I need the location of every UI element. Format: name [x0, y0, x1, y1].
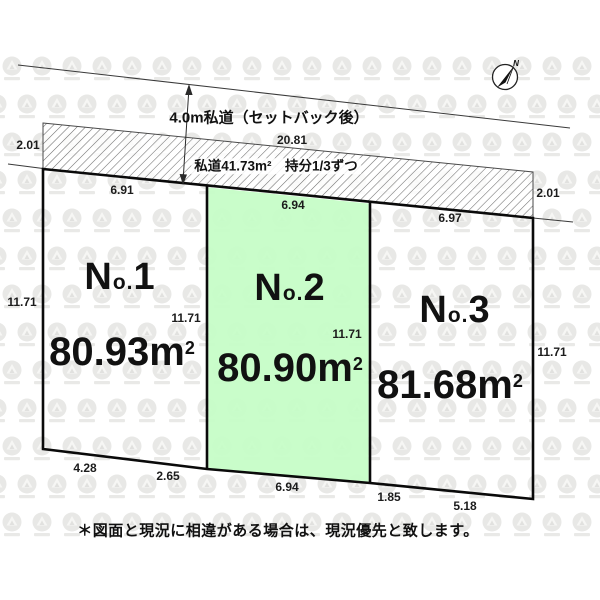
dim-no3-bottom-left: 1.85 [377, 491, 400, 503]
dim-no2-right: 11.71 [332, 328, 361, 340]
plot1-no-o: o. [113, 271, 134, 294]
plot3-area-label: 81.68m2 [377, 365, 523, 405]
plot1-area-value: 80.93 [49, 330, 149, 374]
plot3-area-unit: m [477, 363, 513, 407]
road-area-share-label: 私道41.73m² 持分1/3ずつ [191, 158, 361, 174]
dim-no3-right: 11.71 [537, 346, 566, 358]
dim-no2-top: 6.94 [281, 199, 304, 211]
left-extension-line [8, 164, 43, 169]
plot1-number-label: No.1 [84, 258, 155, 296]
plot2-area-sup: 2 [353, 354, 363, 374]
road-length-dimension: 20.81 [277, 134, 307, 146]
dim-no2-bottom: 6.94 [275, 481, 298, 493]
dim-no3-bottom-right: 5.18 [453, 500, 476, 512]
plot2-no-o: o. [283, 282, 304, 305]
dim-no3-top: 6.97 [438, 212, 461, 224]
dim-setback-right: 2.01 [536, 187, 559, 199]
plot3-no-digit: 3 [468, 289, 490, 331]
disclaimer-note: ＊図面と現況に相違がある場合は、現況優先と致します。 [77, 524, 479, 539]
plot3-no-o: o. [448, 304, 469, 327]
plot1-no-digit: 1 [133, 256, 155, 298]
plot3-area-sup: 2 [513, 371, 523, 391]
dim-no1-bottom-right: 2.65 [156, 470, 179, 482]
dim-no1-left: 11.71 [7, 296, 36, 308]
dim-no1-right: 11.71 [171, 312, 200, 324]
plot2-number-label: No.2 [254, 269, 325, 307]
dim-no1-bottom-left: 4.28 [73, 462, 96, 474]
plot1-area-label: 80.93m2 [49, 332, 195, 372]
compass-icon [493, 65, 518, 90]
dim-setback-left: 2.01 [16, 139, 39, 151]
plot1-area-unit: m [149, 330, 185, 374]
plot1-area-sup: 2 [185, 338, 195, 358]
plot3-area-value: 81.68 [377, 363, 477, 407]
plot1-no-n: N [84, 256, 112, 298]
land-plot-diagram: N 4.0m私道（セットバック後） 20.81 私道41.73m² 持分1/3ず… [0, 0, 600, 600]
plot3-no-n: N [419, 289, 447, 331]
plot2-area-unit: m [317, 346, 353, 390]
plot2-area-value: 80.90 [217, 346, 317, 390]
plot2-no-digit: 2 [303, 267, 325, 309]
dim-no1-top: 6.91 [110, 184, 133, 196]
plot2-area-label: 80.90m2 [217, 348, 363, 388]
plot2-no-n: N [254, 267, 282, 309]
road-width-label: 4.0m私道（セットバック後） [169, 111, 368, 126]
compass-north-label: N [513, 60, 519, 68]
plot3-number-label: No.3 [419, 291, 490, 329]
